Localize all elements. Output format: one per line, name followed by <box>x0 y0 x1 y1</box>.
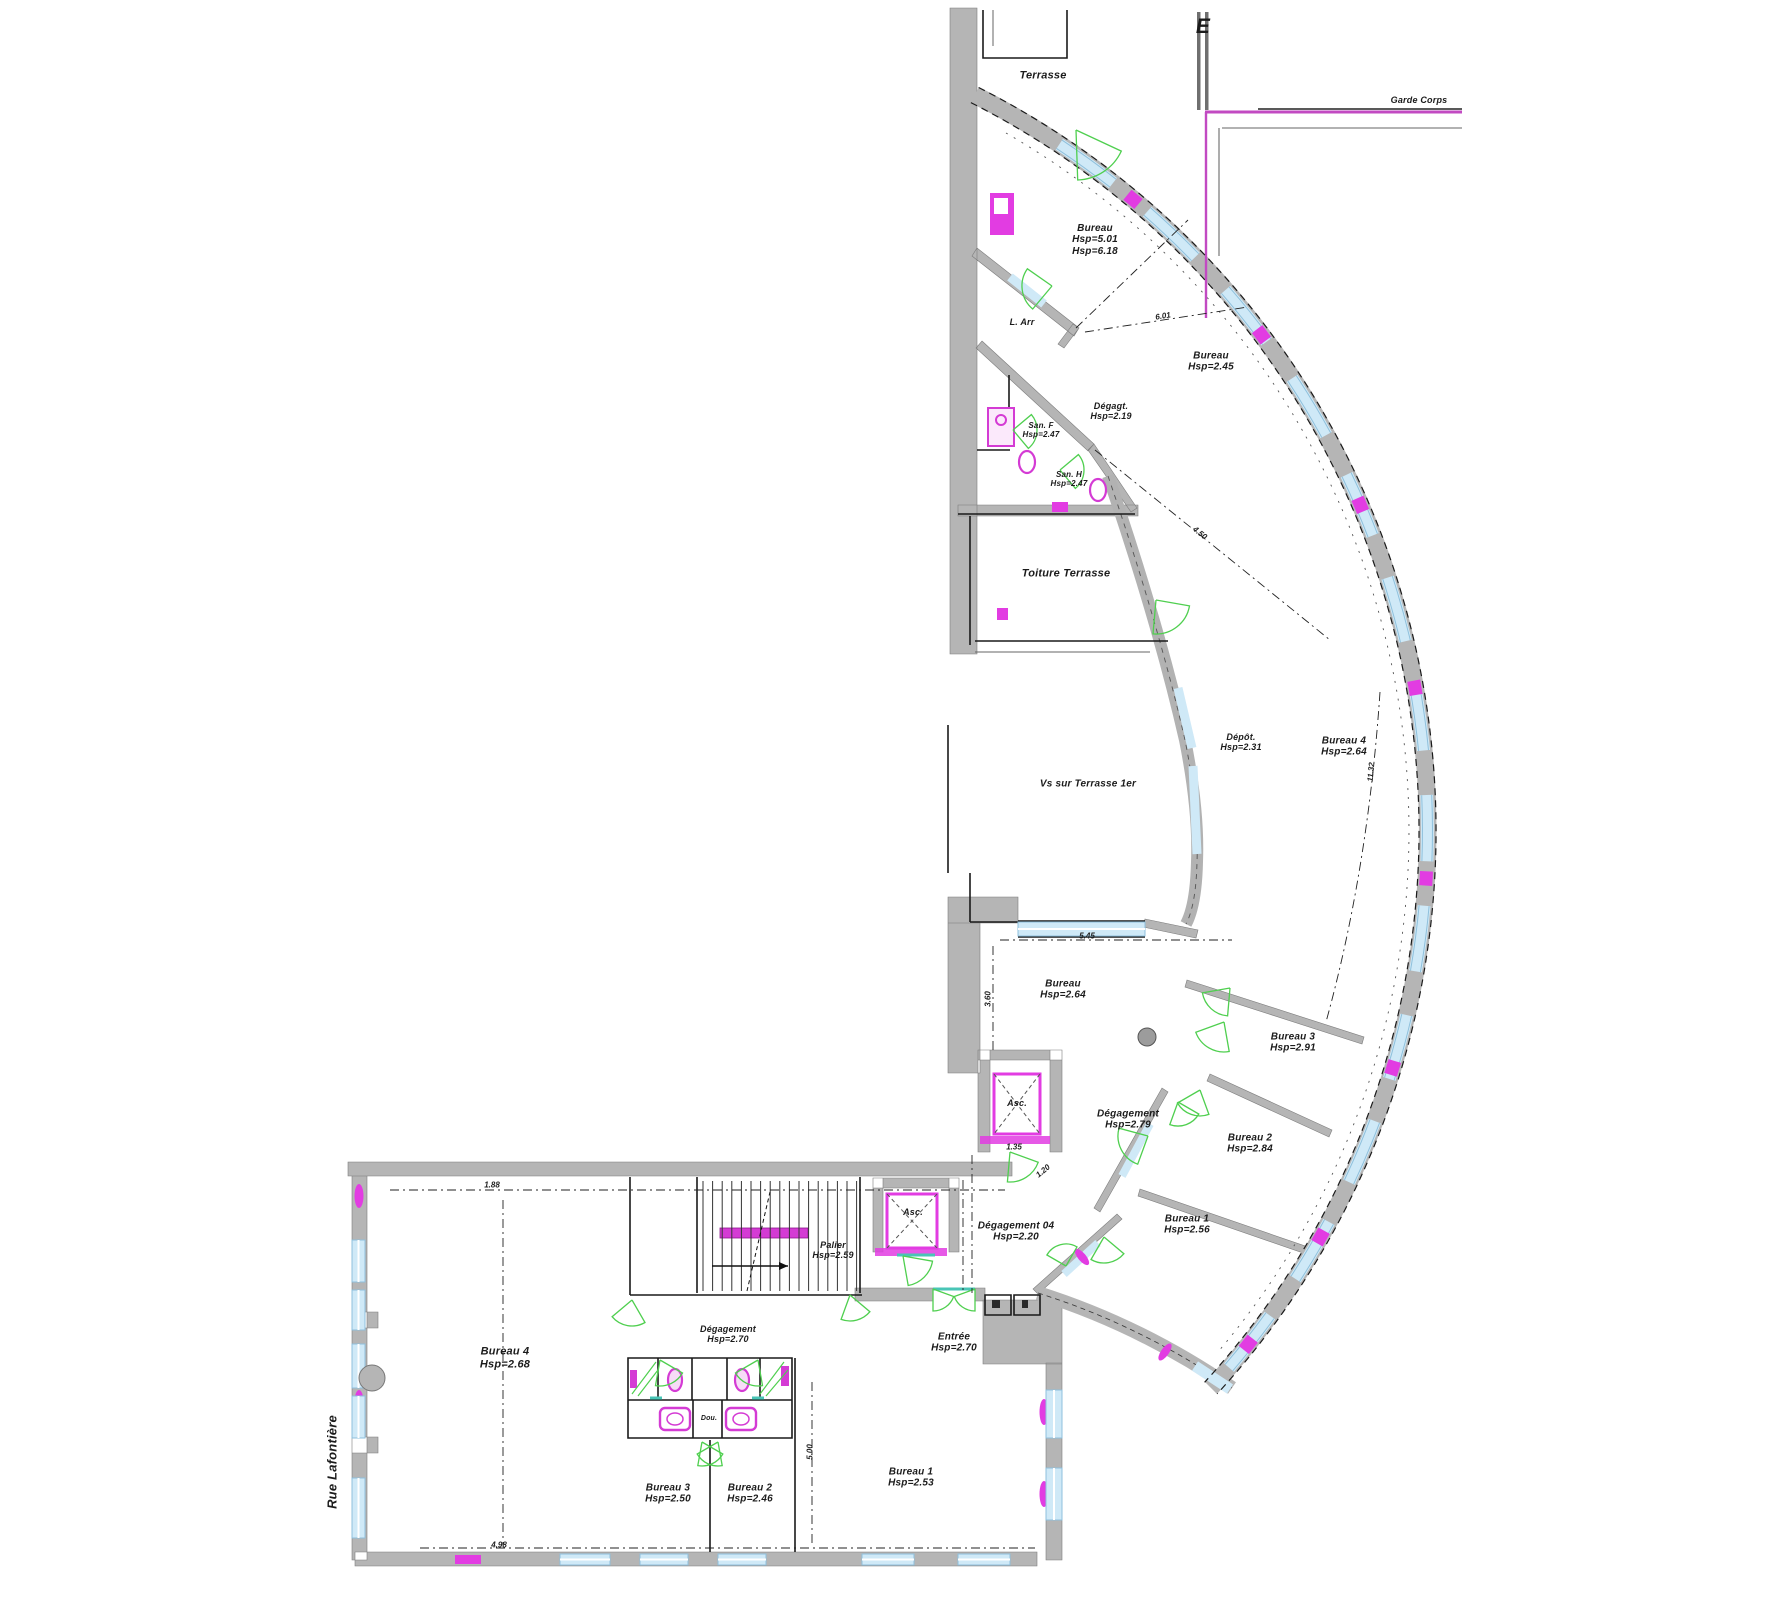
structural-column <box>1138 1028 1156 1046</box>
label-palier-line-0: Palier <box>812 1240 853 1250</box>
label-bureau3-main: Bureau 3Hsp=2.50 <box>645 1483 691 1506</box>
label-rue-lafontiere: Rue Lafontière <box>326 1415 341 1509</box>
elevator-2 <box>875 1194 947 1256</box>
basin-1 <box>660 1408 690 1430</box>
facade-glazing-segment <box>1059 144 1113 183</box>
label-bureau4-main: Bureau 4Hsp=2.68 <box>480 1345 530 1370</box>
label-toiture-terrasse: Toiture Terrasse <box>1022 568 1111 581</box>
door-elevator2 <box>903 1256 933 1286</box>
dimension-text-9: 5.00 <box>806 1444 815 1460</box>
wc-upper-2 <box>1090 479 1106 501</box>
dimension-text-2-value: 5.45 <box>1079 932 1095 941</box>
floor-plan-drawing <box>0 0 1782 1600</box>
label-bureau1-main-line-0: Bureau 1 <box>888 1467 934 1478</box>
door-entrance-left <box>933 1289 954 1311</box>
facade-glazing-segment <box>1416 906 1425 972</box>
label-degagement-04-line-1: Hsp=2.20 <box>978 1232 1055 1243</box>
label-toiture-terrasse-line-0: Toiture Terrasse <box>1022 568 1111 581</box>
label-bureau-245-line-1: Hsp=2.45 <box>1188 362 1234 373</box>
label-asc-2-line-0: Asc. <box>903 1207 923 1217</box>
label-terrasse-line-0: Terrasse <box>1019 70 1066 83</box>
label-bureau4-arc-line-1: Hsp=2.64 <box>1321 747 1367 758</box>
dimension-text-6: 11.32 <box>1366 762 1377 782</box>
san-green-marks <box>632 1362 788 1396</box>
label-vs-terrasse: Vs sur Terrasse 1er <box>1040 778 1136 789</box>
label-degagement-270-line-1: Hsp=2.70 <box>700 1334 756 1344</box>
teal-sills <box>650 1255 975 1398</box>
label-bureau2-arc-line-0: Bureau 2 <box>1227 1133 1273 1144</box>
door-corridor-bureau4 <box>612 1300 645 1326</box>
label-bureau4-arc-line-0: Bureau 4 <box>1321 736 1367 747</box>
label-rue-lafontiere-line-0: Rue Lafontière <box>326 1415 341 1509</box>
facade-window-marker <box>1127 195 1138 204</box>
label-san-f-line-1: Hsp=2.47 <box>1023 430 1060 439</box>
label-electrical-symbol: E <box>1196 15 1210 39</box>
label-bureau2-main-line-1: Hsp=2.46 <box>727 1494 773 1505</box>
label-bureau2-main-line-0: Bureau 2 <box>727 1483 773 1494</box>
door-bureau3-b <box>1196 1022 1229 1052</box>
glazing-wall1 <box>1010 277 1044 304</box>
door-bureau2-a <box>1178 1090 1209 1116</box>
dimension-text-3-value: 3.60 <box>984 991 993 1007</box>
wall-masses <box>348 8 1364 1566</box>
window-marker-left-1 <box>355 1184 364 1208</box>
facade-window-marker <box>1357 498 1363 511</box>
label-bureau-264-line-0: Bureau <box>1040 979 1086 990</box>
label-asc-1-line-0: Asc. <box>1007 1098 1027 1108</box>
label-bureau2-main: Bureau 2Hsp=2.46 <box>727 1483 773 1506</box>
label-garde-corps: Garde Corps <box>1391 95 1448 105</box>
label-bureau4-arc: Bureau 4Hsp=2.64 <box>1321 736 1367 759</box>
label-depot-line-0: Dépôt. <box>1220 732 1261 742</box>
glazing-corridor-wall <box>1122 1124 1150 1176</box>
garde-corps-rail <box>1205 109 1462 318</box>
label-degagt-line-0: Dégagt. <box>1090 401 1131 411</box>
label-bureau-haut: BureauHsp=5.01Hsp=6.18 <box>1072 223 1118 257</box>
stair-direction-arrowhead <box>779 1262 788 1270</box>
dimension-text-3: 3.60 <box>984 991 993 1007</box>
label-bureau-haut-line-0: Bureau <box>1072 223 1118 234</box>
magenta-square-san <box>1052 502 1068 512</box>
label-bureau3-arc-line-0: Bureau 3 <box>1270 1032 1316 1043</box>
dimension-text-0-value: 1.88 <box>484 1181 500 1190</box>
wc-upper-1 <box>1019 451 1035 473</box>
label-electrical-symbol-line-0: E <box>1196 15 1210 39</box>
label-bureau-264-line-1: Hsp=2.64 <box>1040 990 1086 1001</box>
label-bureau1-main-line-1: Hsp=2.53 <box>888 1478 934 1489</box>
label-bureau4-main-line-0: Bureau 4 <box>480 1345 530 1358</box>
label-san-h-line-0: San. H <box>1051 470 1088 479</box>
label-bureau-haut-line-1: Hsp=5.01 <box>1072 234 1118 245</box>
label-san-f-line-0: San. F <box>1023 421 1060 430</box>
label-bureau4-main-line-1: Hsp=2.68 <box>480 1358 530 1371</box>
label-san-f: San. FHsp=2.47 <box>1023 421 1060 439</box>
san-marker-left <box>630 1370 637 1388</box>
label-bureau3-arc: Bureau 3Hsp=2.91 <box>1270 1032 1316 1055</box>
label-depot: Dépôt.Hsp=2.31 <box>1220 732 1261 753</box>
stair-break-line <box>747 1192 770 1291</box>
dimension-text-4: 1.35 <box>1006 1143 1022 1152</box>
label-bureau2-arc-line-1: Hsp=2.84 <box>1227 1144 1273 1155</box>
label-depot-line-1: Hsp=2.31 <box>1220 742 1261 752</box>
label-douche-line-0: Dou. <box>701 1415 717 1423</box>
magenta-square-toiture <box>997 608 1008 620</box>
wc-lower-1 <box>668 1369 682 1391</box>
floor-plan-canvas: TerrasseGarde CorpsEBureauHsp=5.01Hsp=6.… <box>0 0 1782 1600</box>
label-entree: EntréeHsp=2.70 <box>931 1332 977 1355</box>
facade-window-marker <box>1257 329 1266 341</box>
dimension-text-9-value: 5.00 <box>806 1444 815 1460</box>
dimension-lines-group <box>390 220 1380 1548</box>
glazing-inner-arc-2 <box>1193 766 1197 854</box>
label-garde-corps-line-0: Garde Corps <box>1391 95 1448 105</box>
label-degagt-line-1: Hsp=2.19 <box>1090 411 1131 421</box>
facade-glazing-segment <box>1147 212 1195 258</box>
label-douche: Dou. <box>701 1415 717 1423</box>
elevator-1 <box>980 1074 1050 1144</box>
label-degagement-279-line-0: Dégagement <box>1097 1109 1159 1120</box>
label-l-arr-line-0: L. Arr <box>1010 317 1035 327</box>
label-san-h-line-1: Hsp=2.47 <box>1051 479 1088 488</box>
label-degagement-270-line-0: Dégagement <box>700 1324 756 1334</box>
label-bureau-264: BureauHsp=2.64 <box>1040 979 1086 1002</box>
label-terrasse: Terrasse <box>1019 70 1066 83</box>
label-asc-1: Asc. <box>1007 1098 1027 1108</box>
door-bureau2-b <box>1170 1102 1199 1126</box>
facade-window-marker <box>1391 1061 1395 1075</box>
facade-window-marker <box>1414 681 1417 695</box>
door-swings-group <box>612 130 1230 1466</box>
label-palier-line-1: Hsp=2.59 <box>812 1250 853 1260</box>
dimension-text-6-value: 11.32 <box>1366 762 1377 782</box>
dimension-text-1: 4.98 <box>491 1541 507 1550</box>
facade-window-marker <box>1426 871 1427 885</box>
label-bureau1-arc: Bureau 1Hsp=2.56 <box>1164 1214 1210 1237</box>
facade-window-marker <box>1244 1339 1253 1350</box>
label-entree-line-0: Entrée <box>931 1332 977 1343</box>
dimension-text-1-value: 4.98 <box>491 1541 507 1550</box>
label-bureau2-arc: Bureau 2Hsp=2.84 <box>1227 1133 1273 1156</box>
fixture-cabinet-door <box>994 198 1008 214</box>
label-degagement-04: Dégagement 04Hsp=2.20 <box>978 1221 1055 1244</box>
label-l-arr: L. Arr <box>1010 317 1035 327</box>
label-bureau-245: BureauHsp=2.45 <box>1188 351 1234 374</box>
sanitary-unit-f <box>988 408 1014 446</box>
stair-handrail <box>720 1228 808 1238</box>
label-san-h: San. HHsp=2.47 <box>1051 470 1088 488</box>
label-degagement-279: DégagementHsp=2.79 <box>1097 1109 1159 1132</box>
label-bureau1-main: Bureau 1Hsp=2.53 <box>888 1467 934 1490</box>
label-bureau1-arc-line-0: Bureau 1 <box>1164 1214 1210 1225</box>
wall-pilaster-round <box>359 1365 385 1391</box>
label-degagt: Dégagt.Hsp=2.19 <box>1090 401 1131 422</box>
label-degagement-279-line-1: Hsp=2.79 <box>1097 1120 1159 1131</box>
facade-glazing-segment <box>1292 378 1326 435</box>
label-bureau1-arc-line-1: Hsp=2.56 <box>1164 1225 1210 1236</box>
basin-2 <box>726 1408 756 1430</box>
label-palier: PalierHsp=2.59 <box>812 1240 853 1261</box>
dimension-text-0: 1.88 <box>484 1181 500 1190</box>
label-vs-terrasse-line-0: Vs sur Terrasse 1er <box>1040 778 1136 789</box>
label-bureau3-main-line-0: Bureau 3 <box>645 1483 691 1494</box>
label-entree-line-1: Hsp=2.70 <box>931 1343 977 1354</box>
dimension-text-4-value: 1.35 <box>1006 1143 1022 1152</box>
facade-window-marker <box>1317 1231 1324 1244</box>
label-asc-2: Asc. <box>903 1207 923 1217</box>
label-degagement-04-line-0: Dégagement 04 <box>978 1221 1055 1232</box>
dimension-text-2: 5.45 <box>1079 932 1095 941</box>
label-bureau3-arc-line-1: Hsp=2.91 <box>1270 1043 1316 1054</box>
window-marker-bottom <box>455 1555 481 1564</box>
label-bureau3-main-line-1: Hsp=2.50 <box>645 1494 691 1505</box>
label-bureau-245-line-0: Bureau <box>1188 351 1234 362</box>
facade-glazing-segment <box>1427 795 1428 861</box>
label-degagement-270: DégagementHsp=2.70 <box>700 1324 756 1345</box>
label-bureau-haut-line-2: Hsp=6.18 <box>1072 246 1118 257</box>
